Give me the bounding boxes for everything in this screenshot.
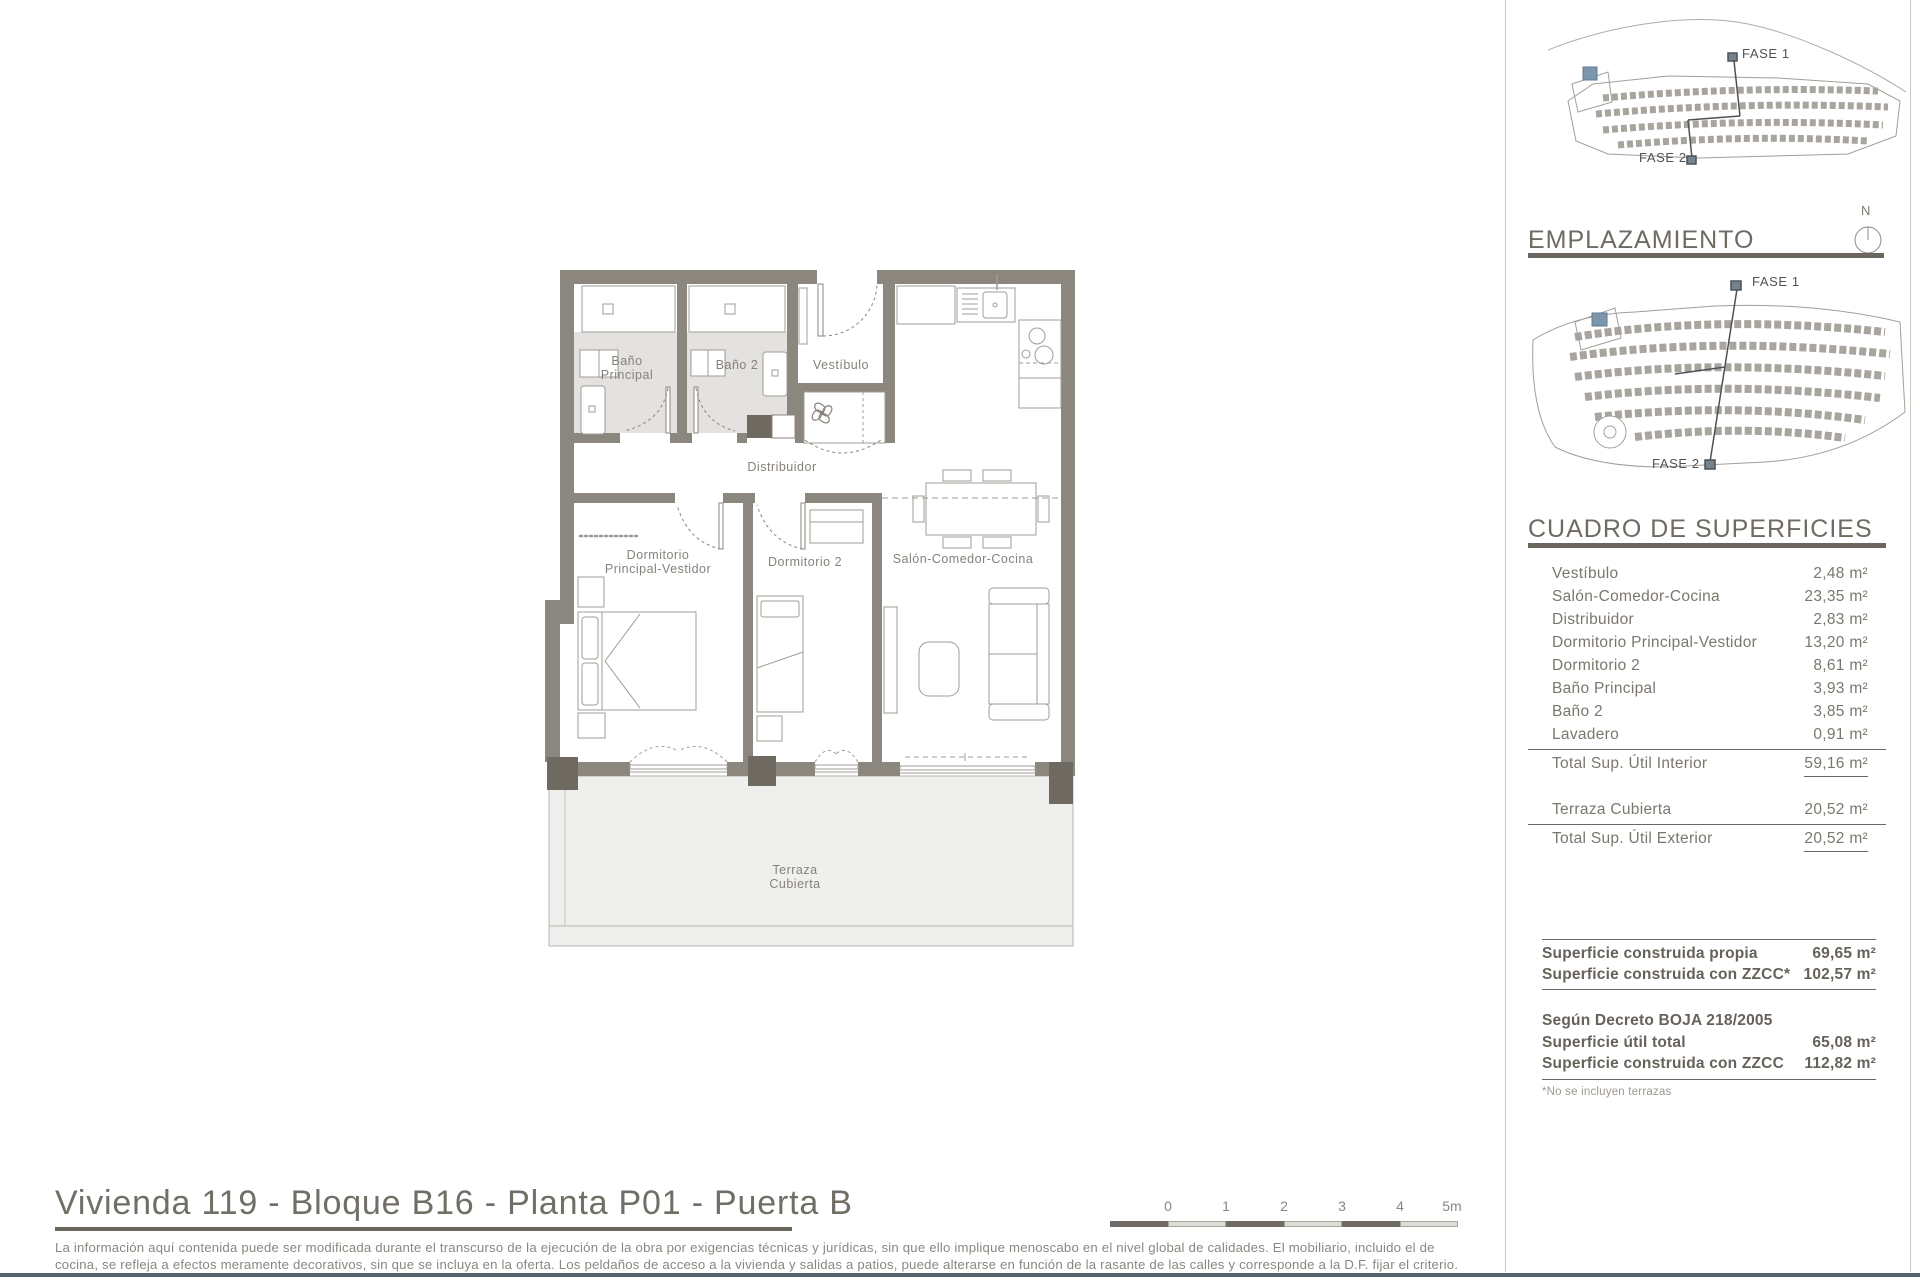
windows bbox=[630, 746, 1035, 773]
scale-tick-label: 1 bbox=[1222, 1198, 1230, 1214]
page-title: Vivienda 119 - Bloque B16 - Planta P01 -… bbox=[55, 1184, 853, 1223]
surface-label: Salón-Comedor-Cocina bbox=[1552, 588, 1720, 606]
disclaimer-line-2: cocina, se refleja a efectos meramente d… bbox=[55, 1257, 1458, 1272]
dining-table bbox=[913, 470, 1049, 548]
surface-value: 23,35 m² bbox=[1804, 588, 1868, 606]
surface-value: 0,91 m² bbox=[1813, 726, 1868, 744]
built-row: Superficie construida con ZZCC 112,82 m² bbox=[1542, 1055, 1876, 1076]
title-rule bbox=[55, 1227, 792, 1231]
phase-boundary bbox=[1675, 281, 1741, 469]
scale-tick-label: 0 bbox=[1164, 1198, 1172, 1214]
room-label-distribuidor: Distribuidor bbox=[747, 460, 816, 474]
surface-row: Dormitorio Principal-Vestidor 13,20 m² bbox=[1528, 634, 1886, 657]
scale-segment bbox=[1284, 1221, 1342, 1227]
surface-row: Lavadero 0,91 m² bbox=[1528, 726, 1886, 749]
total-exterior-label: Total Sup. Útil Exterior bbox=[1552, 830, 1713, 848]
built-summary: Superficie construida propia 69,65 m² Su… bbox=[1542, 939, 1876, 1098]
surface-row: Dormitorio 2 8,61 m² bbox=[1528, 657, 1886, 680]
highlighted-block bbox=[1583, 67, 1597, 80]
surface-value: 3,85 m² bbox=[1813, 703, 1868, 721]
surface-label: Baño Principal bbox=[1552, 680, 1656, 698]
total-interior-row: Total Sup. Útil Interior 59,16 m² bbox=[1528, 749, 1886, 779]
scale-tick-label: 2 bbox=[1280, 1198, 1288, 1214]
built-value: 65,08 m² bbox=[1812, 1034, 1876, 1052]
decree-rows: Superficie útil total 65,08 m² Superfici… bbox=[1542, 1034, 1876, 1076]
surface-value: 8,61 m² bbox=[1813, 657, 1868, 675]
surface-value: 2,48 m² bbox=[1813, 565, 1868, 583]
room-label-terraza: Terraza Cubierta bbox=[769, 863, 820, 891]
total-exterior-value: 20,52 m² bbox=[1804, 830, 1868, 852]
disclaimer-line-1: La información aquí contenida puede ser … bbox=[55, 1240, 1435, 1255]
exterior-rows: Terraza Cubierta 20,52 m² bbox=[1528, 801, 1886, 824]
room-label-vestibulo: Vestíbulo bbox=[813, 358, 869, 372]
sofa bbox=[884, 588, 1049, 720]
total-interior-value: 59,16 m² bbox=[1804, 755, 1868, 777]
surface-row: Terraza Cubierta 20,52 m² bbox=[1528, 801, 1886, 824]
total-interior-label: Total Sup. Útil Interior bbox=[1552, 755, 1707, 773]
surface-label: Baño 2 bbox=[1552, 703, 1603, 721]
room-label-dormitorio-2: Dormitorio 2 bbox=[768, 555, 842, 569]
sheet-bottom-border bbox=[0, 1273, 1920, 1277]
highlighted-block bbox=[1592, 313, 1607, 326]
surfaces-title: CUADRO DE SUPERFICIES bbox=[1528, 515, 1873, 544]
built-row: Superficie útil total 65,08 m² bbox=[1542, 1034, 1876, 1055]
scale-tick-label: 4 bbox=[1396, 1198, 1404, 1214]
surfaces-table: Vestíbulo 2,48 m² Salón-Comedor-Cocina 2… bbox=[1528, 565, 1886, 854]
scale-tick-label: 5m bbox=[1442, 1198, 1461, 1214]
site-map-emplazamiento bbox=[1515, 262, 1910, 474]
total-exterior-row: Total Sup. Útil Exterior 20,52 m² bbox=[1528, 824, 1886, 854]
map2-fase1-label: FASE 1 bbox=[1752, 274, 1800, 289]
built-label: Superficie construida propia bbox=[1542, 945, 1758, 963]
north-label: N bbox=[1861, 203, 1870, 218]
surface-label: Distribuidor bbox=[1552, 611, 1634, 629]
built-rows: Superficie construida propia 69,65 m² Su… bbox=[1542, 939, 1876, 990]
surface-label: Dormitorio 2 bbox=[1552, 657, 1640, 675]
sidebar-left-border bbox=[1505, 0, 1506, 1272]
decree-heading: Según Decreto BOJA 218/2005 bbox=[1542, 1012, 1876, 1034]
site-map-overview bbox=[1548, 6, 1906, 168]
map1-fase1-label: FASE 1 bbox=[1742, 46, 1790, 61]
scale-tick-label: 3 bbox=[1338, 1198, 1346, 1214]
built-value: 69,65 m² bbox=[1812, 945, 1876, 963]
room-label-dormitorio-principal: Dormitorio Principal-Vestidor bbox=[605, 548, 711, 576]
footnote: *No se incluyen terrazas bbox=[1542, 1086, 1876, 1098]
scale-segment bbox=[1110, 1221, 1168, 1227]
surface-row: Distribuidor 2,83 m² bbox=[1528, 611, 1886, 634]
floor-plan: Baño Principal Baño 2 Vestíbulo Distribu… bbox=[545, 270, 1080, 960]
terrace bbox=[549, 776, 1073, 946]
bedroom2-furniture bbox=[757, 510, 863, 741]
surface-value: 13,20 m² bbox=[1804, 634, 1868, 652]
built-label: Superficie útil total bbox=[1542, 1034, 1686, 1052]
surface-label: Dormitorio Principal-Vestidor bbox=[1552, 634, 1757, 652]
room-label-bano-principal: Baño Principal bbox=[601, 354, 653, 382]
kitchen bbox=[897, 274, 1061, 408]
map1-fase2-label: FASE 2 bbox=[1639, 150, 1687, 165]
sidebar-right-border bbox=[1910, 0, 1911, 1272]
built-row: Superficie construida propia 69,65 m² bbox=[1542, 945, 1876, 966]
built-label: Superficie construida con ZZCC bbox=[1542, 1055, 1784, 1073]
built-row: Superficie construida con ZZCC* 102,57 m… bbox=[1542, 966, 1876, 987]
surfaces-rule bbox=[1528, 543, 1886, 548]
emplazamiento-title: EMPLAZAMIENTO bbox=[1528, 226, 1754, 255]
surface-label: Lavadero bbox=[1552, 726, 1619, 744]
scale-segment bbox=[1168, 1221, 1226, 1227]
laundry-unit bbox=[772, 415, 795, 438]
decree-box: Superficie útil total 65,08 m² Superfici… bbox=[1542, 1034, 1876, 1080]
surface-value: 2,83 m² bbox=[1813, 611, 1868, 629]
emplazamiento-rule bbox=[1528, 253, 1884, 258]
built-value: 112,82 m² bbox=[1804, 1055, 1876, 1073]
surface-value: 3,93 m² bbox=[1813, 680, 1868, 698]
surface-row: Baño 2 3,85 m² bbox=[1528, 703, 1886, 726]
plan-sheet: Baño Principal Baño 2 Vestíbulo Distribu… bbox=[0, 0, 1920, 1280]
surface-label: Vestíbulo bbox=[1552, 565, 1618, 583]
scale-segment bbox=[1400, 1221, 1458, 1227]
scale-bar-segments bbox=[1110, 1221, 1458, 1227]
room-label-salon: Salón-Comedor-Cocina bbox=[893, 552, 1034, 566]
built-value: 102,57 m² bbox=[1804, 966, 1876, 984]
surface-row: Vestíbulo 2,48 m² bbox=[1528, 565, 1886, 588]
surface-label: Terraza Cubierta bbox=[1552, 801, 1671, 819]
interior-rows: Vestíbulo 2,48 m² Salón-Comedor-Cocina 2… bbox=[1528, 565, 1886, 749]
scale-segment bbox=[1342, 1221, 1400, 1227]
surface-row: Baño Principal 3,93 m² bbox=[1528, 680, 1886, 703]
scale-segment bbox=[1226, 1221, 1284, 1227]
built-label: Superficie construida con ZZCC* bbox=[1542, 966, 1790, 984]
map2-fase2-label: FASE 2 bbox=[1652, 456, 1700, 471]
surface-row: Salón-Comedor-Cocina 23,35 m² bbox=[1528, 588, 1886, 611]
scale-bar: 0 1 2 3 4 5m bbox=[1110, 1198, 1458, 1230]
room-label-bano-2: Baño 2 bbox=[716, 358, 759, 372]
surface-value: 20,52 m² bbox=[1804, 801, 1868, 819]
